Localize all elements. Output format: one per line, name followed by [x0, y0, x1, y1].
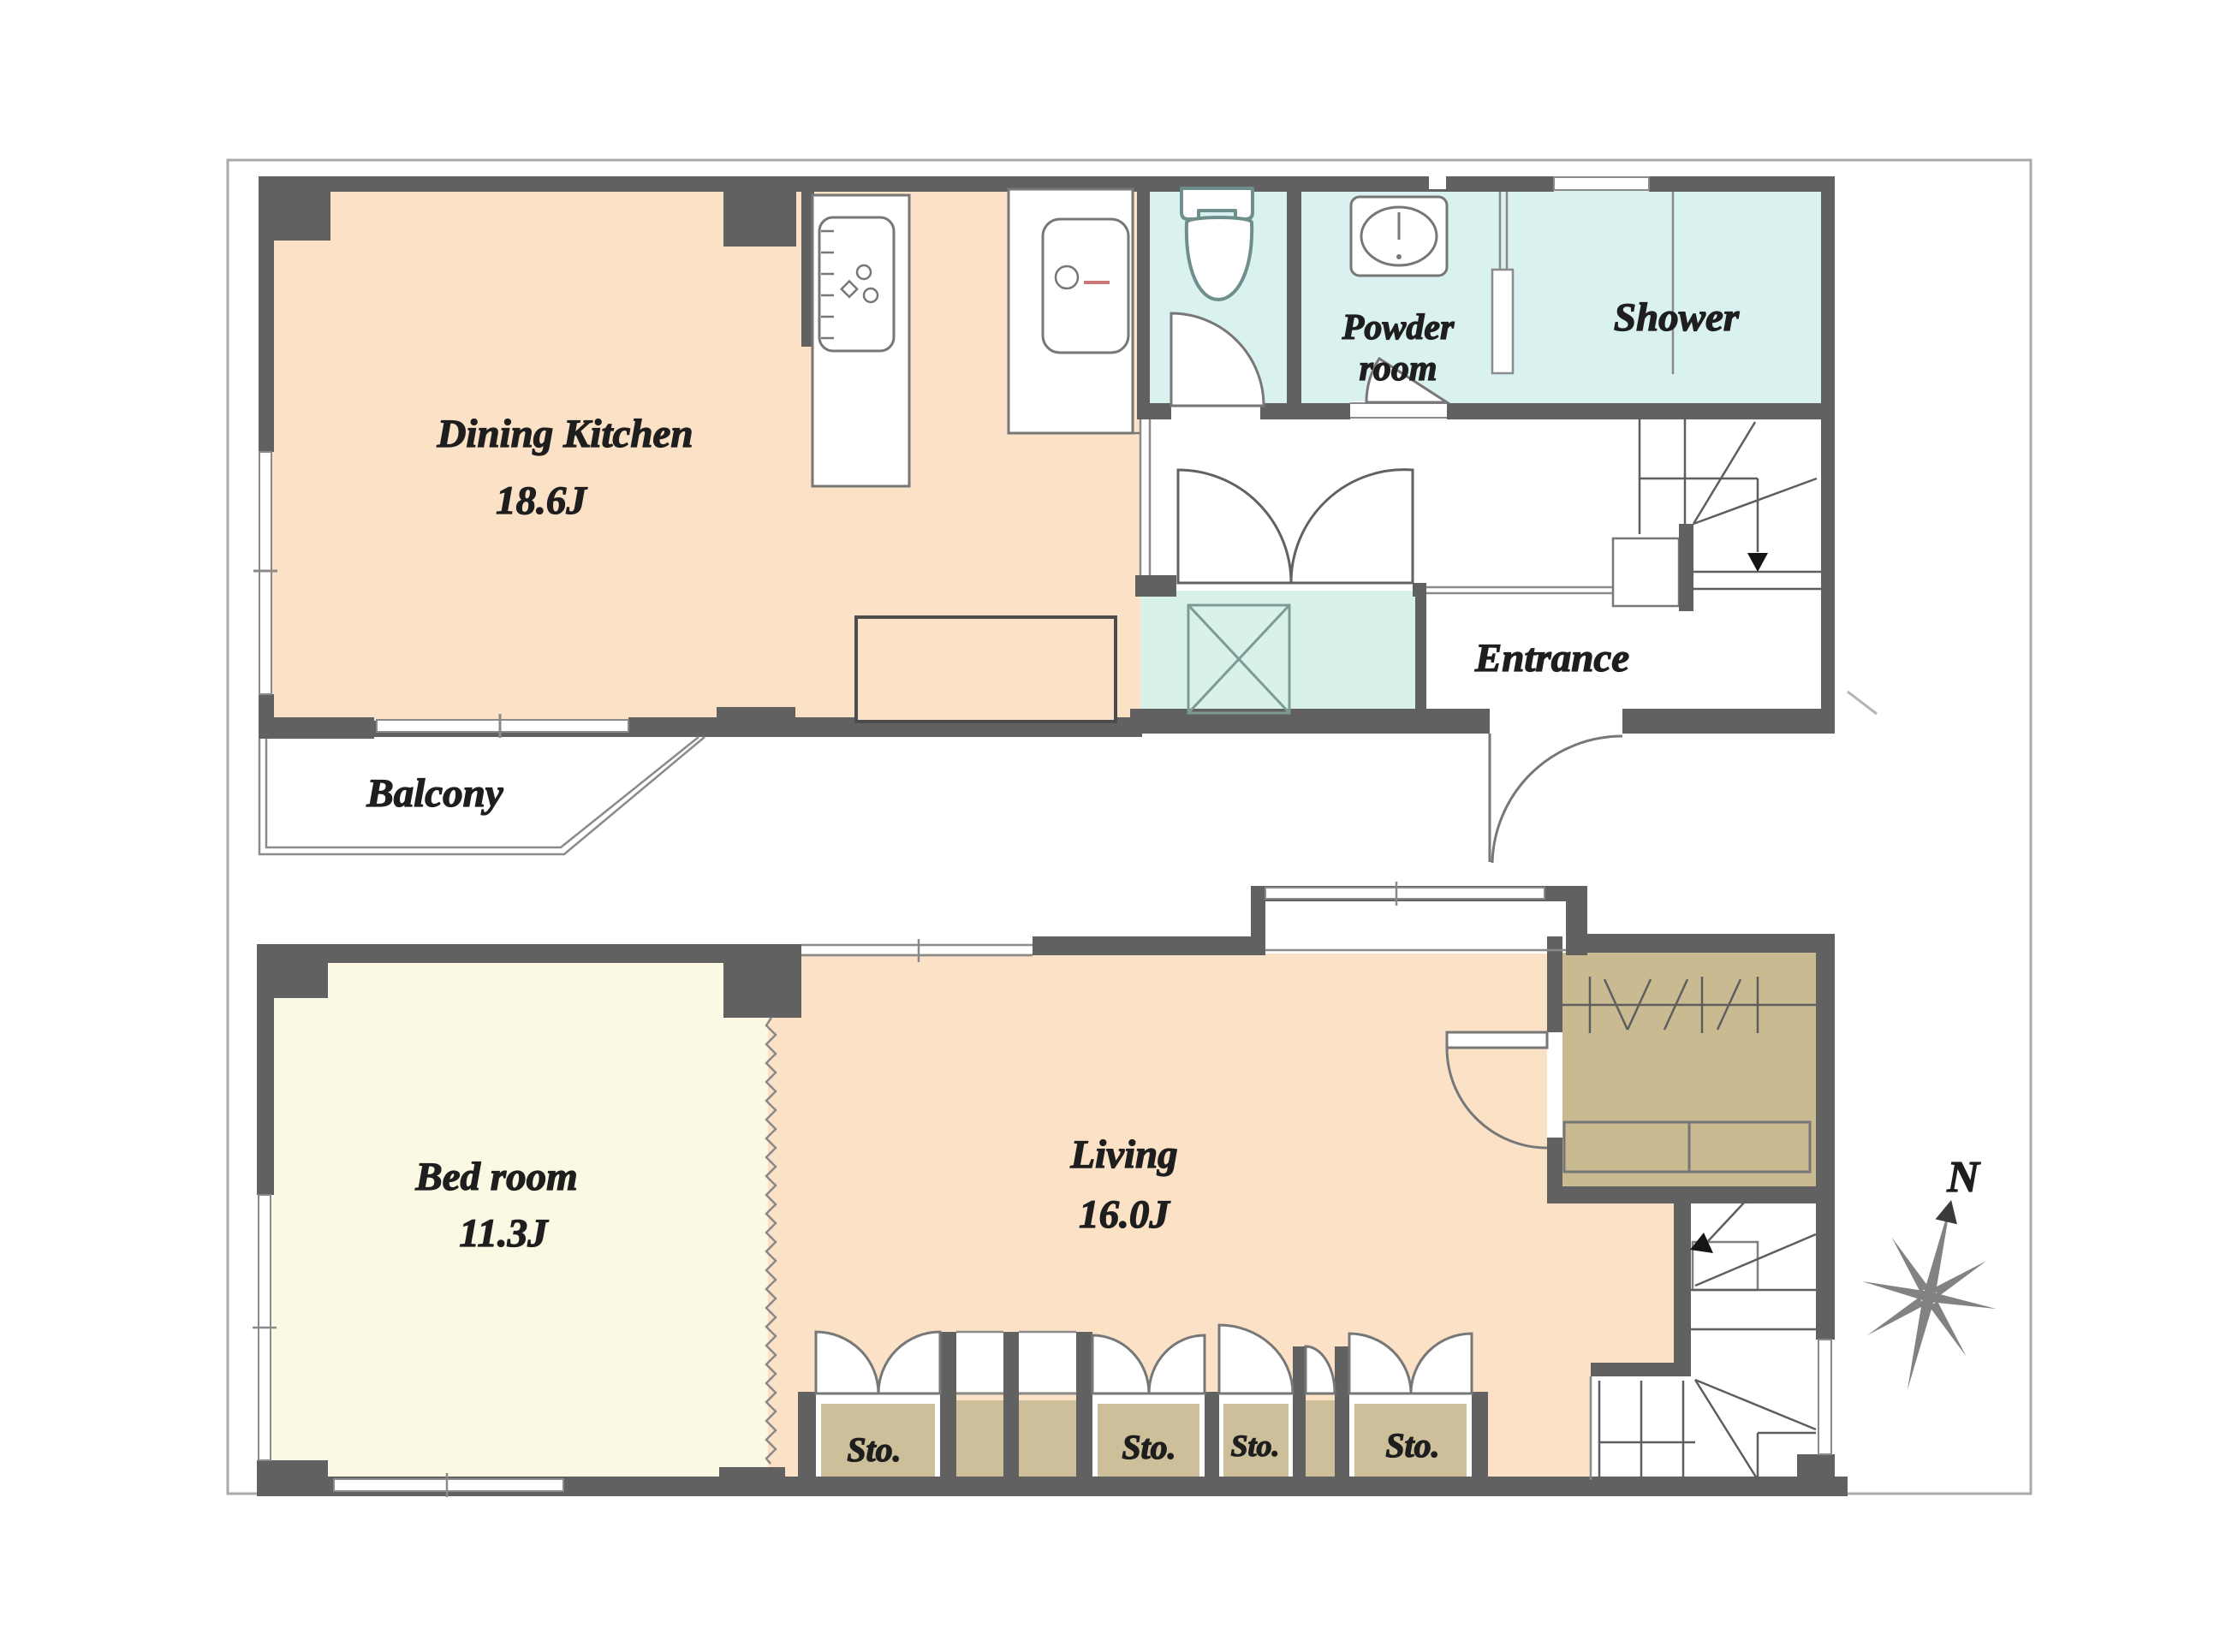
svg-text:Dining Kitchen: Dining Kitchen: [436, 412, 693, 456]
svg-text:Shower: Shower: [1614, 295, 1740, 340]
svg-text:room: room: [1359, 349, 1437, 389]
svg-text:Bed room: Bed room: [414, 1155, 577, 1199]
svg-text:Balcony: Balcony: [366, 771, 503, 816]
svg-text:18.6J: 18.6J: [496, 478, 587, 523]
svg-text:Living: Living: [1069, 1132, 1177, 1177]
svg-text:Powder: Powder: [1342, 308, 1455, 348]
svg-text:Sto.: Sto.: [1385, 1426, 1439, 1465]
svg-text:16.0J: 16.0J: [1079, 1192, 1170, 1237]
svg-text:Sto.: Sto.: [1230, 1429, 1279, 1463]
svg-text:Sto.: Sto.: [847, 1430, 901, 1469]
svg-text:Entrance: Entrance: [1474, 636, 1629, 680]
svg-text:Sto.: Sto.: [1122, 1428, 1175, 1466]
svg-text:N: N: [1946, 1153, 1981, 1202]
svg-text:11.3J: 11.3J: [459, 1211, 549, 1256]
